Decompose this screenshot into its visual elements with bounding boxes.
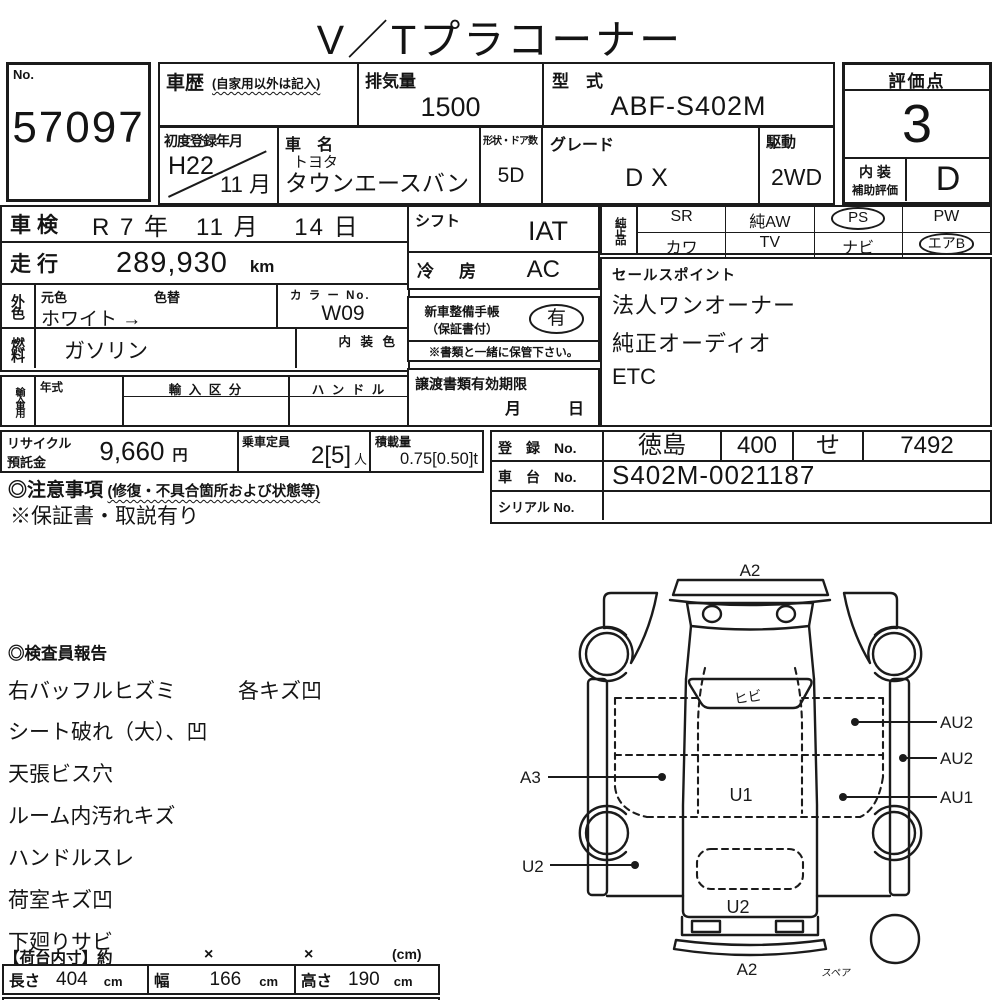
registration-row: 登 録 No. 徳島 400 せ 7492 xyxy=(492,432,990,462)
cargo-x1: × xyxy=(204,946,213,964)
shift-value: IAT xyxy=(528,216,568,247)
shift-label: シフト xyxy=(415,210,460,231)
mileage-value: 289,930 xyxy=(116,247,228,280)
cargo-height-value: 190 xyxy=(348,969,380,991)
cargo-width-value: 166 xyxy=(210,969,242,991)
diagram-rear-inner-label: U2 xyxy=(726,897,749,917)
score-box: 評価点 3 内 装 補助評価 D xyxy=(842,62,992,205)
registration-label: 登 録 No. xyxy=(492,432,604,460)
report-item: 右バッフルヒズミ xyxy=(8,675,176,705)
ac-value: AC xyxy=(527,256,560,284)
ac-row: 冷 房 AC xyxy=(409,253,598,286)
handle-label: ハ ン ド ル xyxy=(290,377,408,397)
factory-equipment-box: 純正品 SR 純AW PS PW カワ TV ナビ エアB xyxy=(600,205,992,255)
exterior-color-label: 外色 xyxy=(2,285,36,327)
service-book-box: 新車整備手帳 （保証書付） 有 ※書類と一緒に保管下さい。 xyxy=(407,296,600,362)
diagram-windshield-note: ヒビ xyxy=(733,687,763,707)
capacity-label: 乗車定員 xyxy=(242,433,290,450)
cargo-dims-table: 長さ 404 cm 幅 166 cm 高さ 190 cm xyxy=(2,964,440,995)
factory-equipment-label: 純正品 xyxy=(602,207,638,253)
sales-point-item: 法人ワンオーナー xyxy=(612,288,980,320)
drive-label: 駆動 xyxy=(766,131,796,152)
transfer-month-label: 月 xyxy=(505,395,521,419)
ac-label: 冷 房 xyxy=(417,257,480,282)
score-value: 3 xyxy=(845,91,989,159)
grade-label: グレード xyxy=(550,131,614,155)
diagram-spare-label: スペア xyxy=(821,968,852,979)
first-registration-box: 初度登録年月 H22 11 月 xyxy=(158,126,279,205)
registration-box: 登 録 No. 徳島 400 せ 7492 車 台 No. S402M-0021… xyxy=(490,430,992,524)
cargo-length-unit: cm xyxy=(104,974,123,989)
body-doors-label: 形状・ドア数 xyxy=(483,132,537,147)
recycle-unit: 円 xyxy=(172,444,187,465)
lot-number-box: No. 57097 xyxy=(6,62,151,202)
sales-point-item: 純正オーディオ xyxy=(612,326,980,358)
spare-tire-icon xyxy=(871,915,919,963)
sales-point-item: ETC xyxy=(612,364,980,390)
recycle-value: 9,660 xyxy=(99,436,164,467)
keep-note: ※書類と一緒に保管下さい。 xyxy=(409,340,598,359)
vehicle-damage-diagram: A2 ヒビ U1 U2 A2 xyxy=(500,555,997,1000)
service-book-sub: （保証書付） xyxy=(409,320,515,337)
model-code-label: 型 式 xyxy=(552,67,603,92)
displacement-box: 排気量 1500 xyxy=(357,62,544,127)
score-label: 評価点 xyxy=(845,65,989,91)
caution-note: (修復・不具合箇所および状態等) xyxy=(107,484,320,500)
diagram-right-mid-label: AU2 xyxy=(940,749,973,768)
chassis-value: S402M-0021187 xyxy=(604,462,990,490)
report-item: 天張ビス穴 xyxy=(8,758,438,788)
report-line: 右バッフルヒズミ 各キズ凹 xyxy=(8,675,438,705)
color-no-value: W09 xyxy=(278,302,408,326)
equip-ps-circled: PS xyxy=(831,207,885,230)
transfer-docs-box: 譲渡書類有効期限 月 日 xyxy=(407,368,600,427)
first-registration-month: 11 月 xyxy=(220,167,271,199)
registration-class: 400 xyxy=(722,432,794,460)
vehicle-info-table: 車検 R 7 年 11 月 14 日 走行 289,930 km 外色 元色 色… xyxy=(0,205,410,372)
import-label: 輸入車用 xyxy=(2,377,36,425)
sales-points-label: セールスポイント xyxy=(612,264,980,285)
diagram-rear-label: A2 xyxy=(737,960,758,979)
recycle-label: リサイクル xyxy=(7,433,71,452)
warranty-note: ※保証書・取説有り xyxy=(10,500,199,530)
interior-grade-value: D xyxy=(907,159,989,201)
history-box: 車歴 (自家用以外は記入) xyxy=(158,62,359,127)
body-doors-value: 5D xyxy=(481,164,541,188)
sales-points-box: セールスポイント 法人ワンオーナー 純正オーディオ ETC xyxy=(600,257,992,427)
report-item: シート破れ（大）、凹 xyxy=(8,716,438,746)
equip-navi: ナビ xyxy=(815,233,903,258)
model-code-box: 型 式 ABF-S402M xyxy=(542,62,835,127)
registration-number: 7492 xyxy=(864,432,990,460)
history-note: (自家用以外は記入) xyxy=(212,73,320,92)
body-doors-box: 形状・ドア数 5D xyxy=(479,126,543,205)
model-year-label: 年式 xyxy=(40,379,63,395)
inspection-value: R 7 年 11 月 14 日 xyxy=(92,207,360,242)
displacement-value: 1500 xyxy=(359,92,542,123)
equip-aw: 純AW xyxy=(726,207,814,232)
import-class-label: 輸 入 区 分 xyxy=(124,377,288,397)
first-registration-label: 初度登録年月 xyxy=(164,131,242,151)
diagram-left-low-label: U2 xyxy=(522,857,544,876)
drive-value: 2WD xyxy=(760,164,833,191)
serial-row: シリアル No. xyxy=(492,492,990,520)
caution-line: ◎注意事項 (修復・不具合箇所および状態等) xyxy=(8,475,320,502)
drive-box: 駆動 2WD xyxy=(758,126,835,205)
car-model: タウンエースバン xyxy=(285,164,469,198)
cargo-dims-header: 【荷台内寸】約 × × (cm) xyxy=(4,946,440,962)
serial-label: シリアル No. xyxy=(492,492,604,520)
load-value: 0.75[0.50]t xyxy=(400,450,478,469)
car-name-box: 車 名 トヨタ タウンエースバン xyxy=(277,126,481,205)
shift-row: シフト IAT xyxy=(409,207,598,253)
report-item: ルーム内汚れキズ xyxy=(8,800,438,830)
service-book-label: 新車整備手帳 xyxy=(409,301,515,320)
diagram-left-mid-label: A3 xyxy=(520,768,541,787)
import-car-box: 輸入車用 年式 輸 入 区 分 ハ ン ド ル xyxy=(0,375,410,427)
cargo-width-label: 幅 xyxy=(154,969,170,991)
recycle-fee-box: リサイクル 預託金 9,660 円 乗車定員 2[5] 人 積載量 0.75[0… xyxy=(0,430,484,473)
registration-kana: せ xyxy=(794,432,864,460)
load-label: 積載量 xyxy=(375,433,411,450)
recycle-label2: 預託金 xyxy=(7,452,71,471)
capacity-value: 2[5] xyxy=(311,442,351,470)
equip-tv: TV xyxy=(726,233,814,258)
chassis-row: 車 台 No. S402M-0021187 xyxy=(492,462,990,492)
equip-kawa: カワ xyxy=(638,233,726,258)
cargo-height-label: 高さ xyxy=(301,969,332,991)
history-label: 車歴 xyxy=(166,68,204,95)
diagram-right-top-label: AU2 xyxy=(940,713,973,732)
diagram-right-low-label: AU1 xyxy=(940,788,973,807)
interior-grade-label: 内 装 xyxy=(845,162,905,182)
cargo-width-unit: cm xyxy=(259,974,278,989)
cargo-unit-note: (cm) xyxy=(392,946,422,962)
inspection-row: 車検 R 7 年 11 月 14 日 xyxy=(2,207,408,243)
transfer-day-label: 日 xyxy=(568,395,584,419)
shift-ac-box: シフト IAT 冷 房 AC xyxy=(407,205,600,290)
lot-number-value: 57097 xyxy=(9,103,148,153)
capacity-unit: 人 xyxy=(354,449,367,468)
report-item: ハンドルスレ xyxy=(8,842,438,872)
color-change-label: 色替 xyxy=(154,287,180,306)
interior-color-label: 内 装 色 xyxy=(339,331,398,350)
cargo-height-unit: cm xyxy=(394,974,413,989)
grade-box: グレード DX xyxy=(541,126,760,205)
mileage-row: 走行 289,930 km xyxy=(2,243,408,285)
inspector-report-label: ◎検査員報告 xyxy=(8,640,438,664)
fuel-value: ガソリン xyxy=(64,335,148,365)
model-code-value: ABF-S402M xyxy=(544,91,833,122)
equip-airbag-circled: エアB xyxy=(919,233,974,255)
mileage-label: 走行 xyxy=(2,248,64,278)
exterior-color-row: 外色 元色 色替 ホワイト → カ ラ ー No. W09 xyxy=(2,285,408,329)
caution-label: ◎注意事項 xyxy=(8,480,103,501)
service-book-value: 有 xyxy=(529,304,584,334)
color-no-label: カ ラ ー No. xyxy=(290,287,371,303)
fuel-label: 燃料 xyxy=(2,329,36,368)
displacement-label: 排気量 xyxy=(365,67,416,92)
equip-pw: PW xyxy=(903,207,990,232)
page-title: V／Tプラコーナー xyxy=(0,6,1000,66)
cargo-length-value: 404 xyxy=(56,969,88,991)
grade-value: DX xyxy=(543,164,758,193)
report-item: 各キズ凹 xyxy=(238,675,322,705)
chassis-label: 車 台 No. xyxy=(492,462,604,490)
report-item: 荷室キズ凹 xyxy=(8,884,438,914)
fuel-row: 燃料 ガソリン 内 装 色 xyxy=(2,329,408,368)
registration-area: 徳島 xyxy=(604,432,722,460)
diagram-center-label: U1 xyxy=(729,785,752,805)
inspector-report: ◎検査員報告 右バッフルヒズミ 各キズ凹 シート破れ（大）、凹 天張ビス穴 ルー… xyxy=(8,640,438,956)
inspection-label: 車検 xyxy=(2,209,64,239)
transfer-docs-label: 譲渡書類有効期限 xyxy=(415,374,527,394)
cargo-length-label: 長さ xyxy=(9,969,40,991)
auction-sheet: V／Tプラコーナー No. 57097 車歴 (自家用以外は記入) 排気量 15… xyxy=(0,0,1000,1000)
diagram-front-label: A2 xyxy=(740,561,761,580)
mileage-unit: km xyxy=(250,257,275,277)
lot-number-label: No. xyxy=(13,67,34,82)
serial-value xyxy=(604,492,990,520)
equip-sr: SR xyxy=(638,207,726,232)
exterior-color-value: ホワイト → xyxy=(41,304,141,331)
interior-grade-label2: 補助評価 xyxy=(845,182,905,198)
cargo-x2: × xyxy=(304,946,313,964)
